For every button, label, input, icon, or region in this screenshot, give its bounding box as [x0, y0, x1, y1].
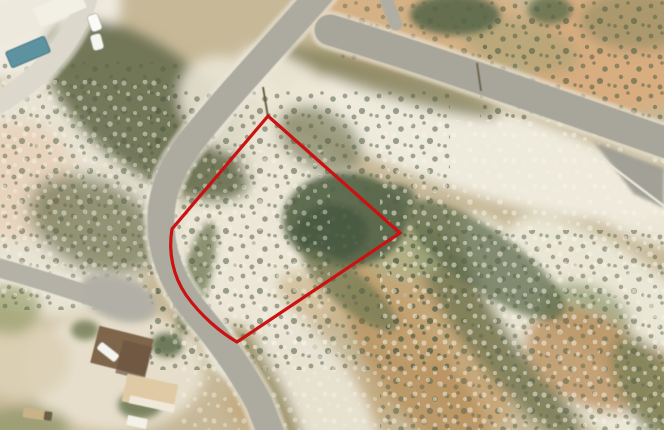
terrain-layer — [0, 0, 664, 430]
satellite-map-canvas[interactable] — [0, 0, 664, 430]
aerial-photo — [0, 0, 664, 430]
truck-cab — [43, 411, 52, 421]
